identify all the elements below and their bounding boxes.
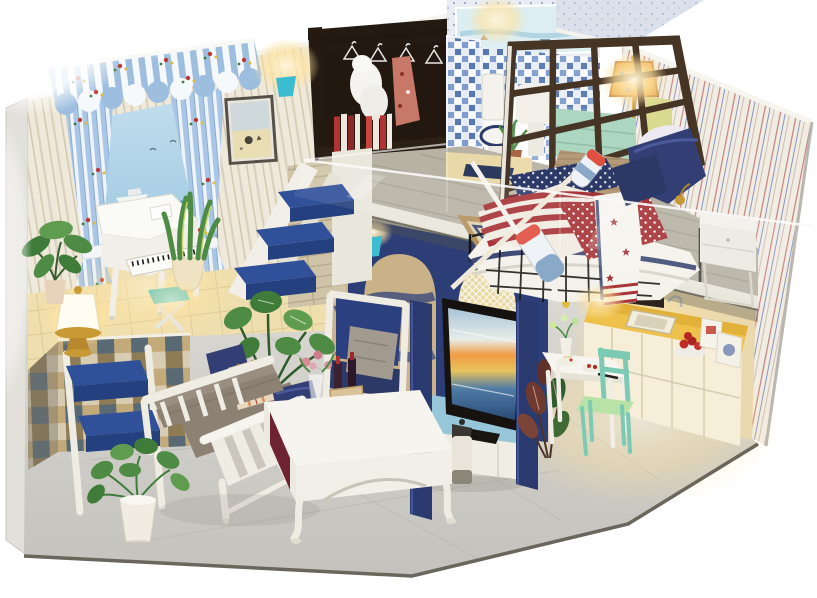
framed-beach-print (226, 96, 276, 163)
dollhouse-photo: Miniature DIY dollhouse room box — coast… (0, 0, 817, 598)
dollhouse-scene: Miniature DIY dollhouse room box — coast… (0, 0, 817, 598)
stool-glow (138, 278, 206, 322)
wine-bottle-2 (348, 358, 356, 390)
white-pot (120, 495, 156, 548)
tv-screen (448, 308, 520, 420)
kitchen-glow-spot (574, 284, 626, 320)
lamp-glow (600, 52, 668, 108)
lighthouse-canister (452, 419, 472, 484)
